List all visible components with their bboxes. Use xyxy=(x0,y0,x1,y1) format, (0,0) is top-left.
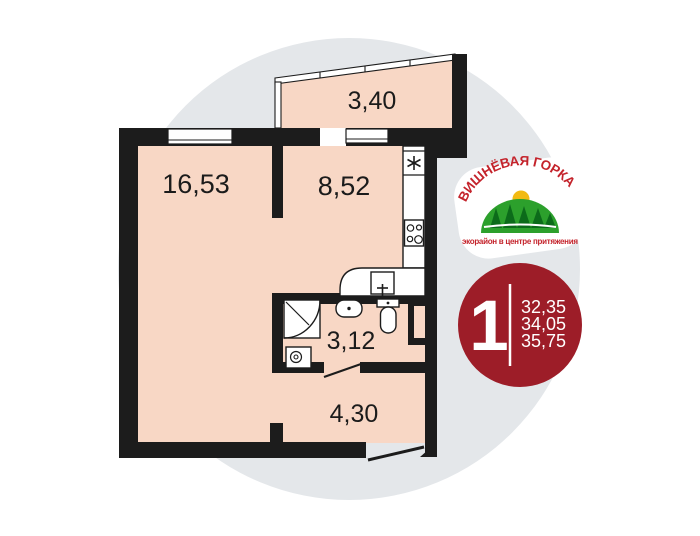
wall-living-kitchen xyxy=(272,146,283,218)
wall-bathroom-left xyxy=(272,293,283,373)
badge-areas: 32,35 34,05 35,75 xyxy=(521,297,566,351)
room-label-kitchen: 8,52 xyxy=(318,171,371,201)
room-label-bathroom: 3,12 xyxy=(327,327,376,355)
floorplan-page: 16,53 8,52 3,40 3,12 4,30 ВИШНЁВАЯ ГОРКА… xyxy=(0,0,700,536)
area-badge: 1 32,35 34,05 35,75 xyxy=(458,263,582,387)
badge-rooms-count: 1 xyxy=(469,287,509,366)
room-label-hallway: 4,30 xyxy=(330,400,379,428)
ventilation-shaft xyxy=(408,299,428,345)
window-living-room xyxy=(168,129,232,144)
kitchen-sink-icon xyxy=(371,272,394,296)
shower-icon xyxy=(284,300,320,338)
balcony-door-opening xyxy=(320,128,346,146)
balcony-side-wall xyxy=(275,82,281,128)
badge-area-total: 35,75 xyxy=(521,331,566,351)
wall-left xyxy=(119,128,138,458)
stove-icon xyxy=(405,220,424,246)
wall-bathroom-south-right xyxy=(360,362,437,373)
room-label-living: 16,53 xyxy=(162,169,230,199)
logo-tagline: экорайон в центре притяжения xyxy=(462,237,578,246)
wall-balcony-right xyxy=(452,54,467,128)
washing-machine-icon xyxy=(286,347,311,368)
room-label-balcony: 3,40 xyxy=(348,87,397,115)
washbasin-icon xyxy=(336,300,362,317)
toilet-icon xyxy=(377,299,399,333)
window-balcony-door xyxy=(346,129,388,143)
wall-hall-stub xyxy=(270,423,283,443)
wall-bottom xyxy=(119,442,366,458)
floorplan-canvas: 16,53 8,52 3,40 3,12 4,30 ВИШНЁВАЯ ГОРКА… xyxy=(0,0,700,536)
